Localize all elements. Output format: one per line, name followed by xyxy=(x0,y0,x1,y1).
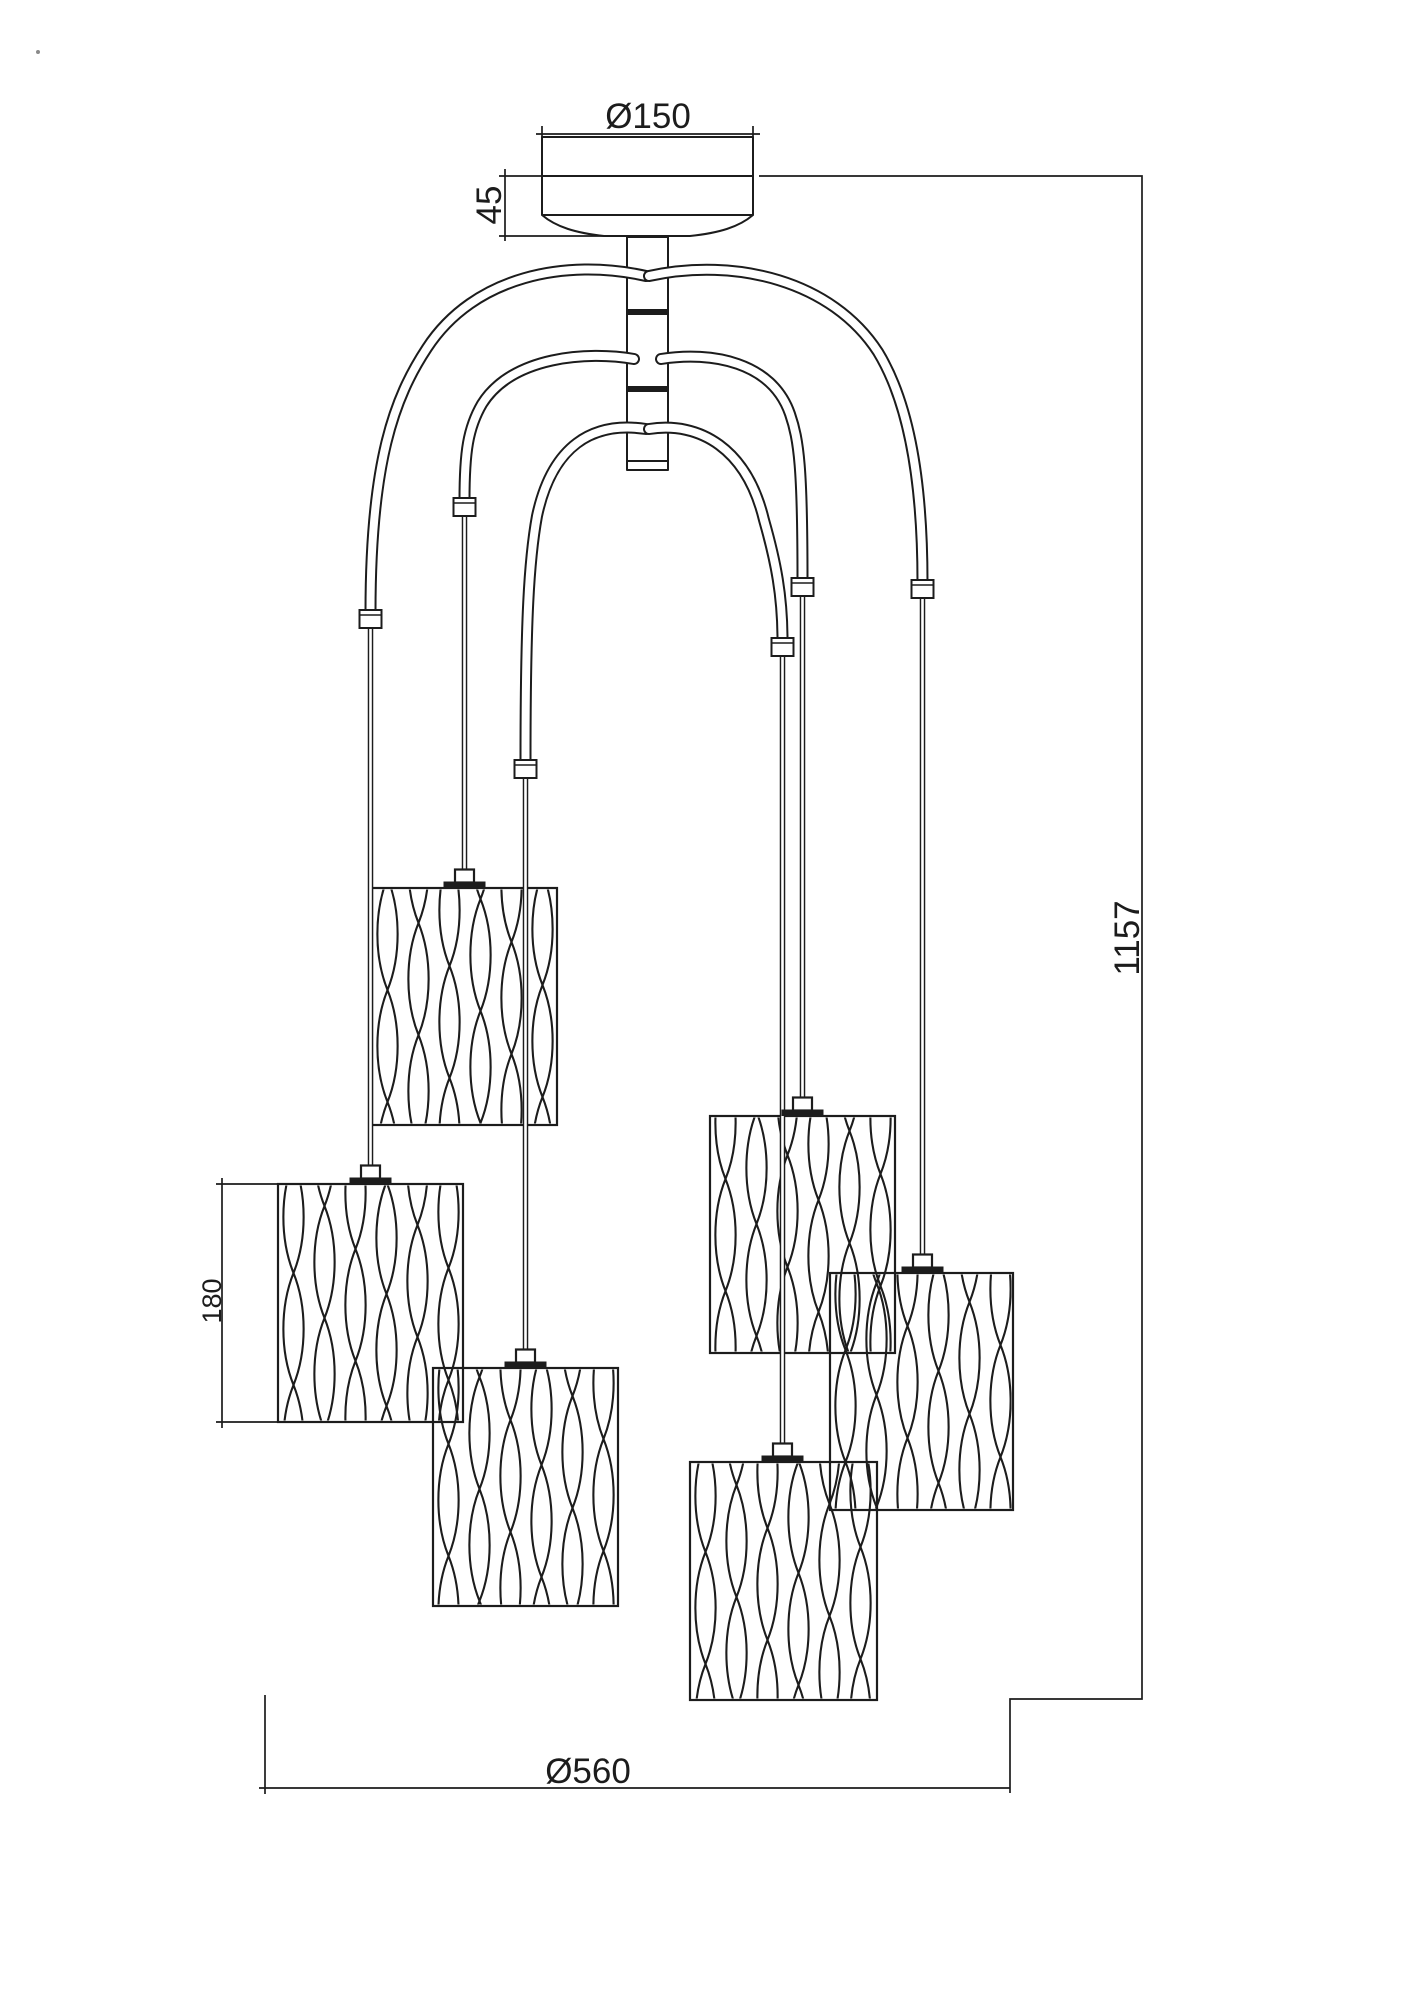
shade-outline xyxy=(830,1273,1013,1510)
shade-cap-5 xyxy=(762,1444,804,1463)
technical-drawing-page: 1157 Ø560 180 Ø150 45 xyxy=(0,0,1413,2000)
shade-outline xyxy=(372,888,557,1125)
shade-height-dimension: 180 xyxy=(197,1178,278,1428)
overall-diameter-dimension: Ø560 xyxy=(259,1695,1010,1794)
shade-cap-1 xyxy=(444,870,486,889)
canopy-height-label: 45 xyxy=(470,186,509,225)
arm-end-connector-5 xyxy=(792,578,814,596)
arm-end-connector-3 xyxy=(515,760,537,778)
shades-layer xyxy=(278,787,1013,1821)
stem-joint-lower xyxy=(627,386,668,392)
shade-cap-6 xyxy=(902,1255,944,1274)
canopy-bell xyxy=(542,215,753,236)
stray-mark xyxy=(36,50,40,54)
arm-end-connector-1 xyxy=(360,610,382,628)
overall-diameter-label: Ø560 xyxy=(545,1752,631,1791)
shade-cap-2 xyxy=(350,1166,392,1185)
arm-end-connector-2 xyxy=(454,498,476,516)
arm-left-inner xyxy=(526,428,647,762)
shade-outline xyxy=(433,1368,618,1606)
shade-outline xyxy=(278,1184,463,1422)
shade-outline xyxy=(690,1462,877,1700)
stem-joint-upper xyxy=(627,309,668,315)
overall-height-label: 1157 xyxy=(1108,900,1147,975)
arm-left-outer xyxy=(371,270,647,612)
shade-height-label: 180 xyxy=(197,1278,227,1323)
arm-end-connector-6 xyxy=(772,638,794,656)
chandelier-dimension-drawing: 1157 Ø560 180 Ø150 45 xyxy=(0,0,1413,2000)
shade-cap-4 xyxy=(782,1098,824,1117)
canopy-diameter-dimension: Ø150 xyxy=(536,97,760,140)
ceiling-canopy xyxy=(542,137,753,236)
overall-height-dimension: 1157 xyxy=(759,176,1147,1793)
arm-right-middle xyxy=(661,357,803,580)
canopy-diameter-label: Ø150 xyxy=(605,97,691,136)
shade-cap-3 xyxy=(505,1350,547,1369)
arm-end-connector-4 xyxy=(912,580,934,598)
arm-right-inner xyxy=(649,428,783,640)
